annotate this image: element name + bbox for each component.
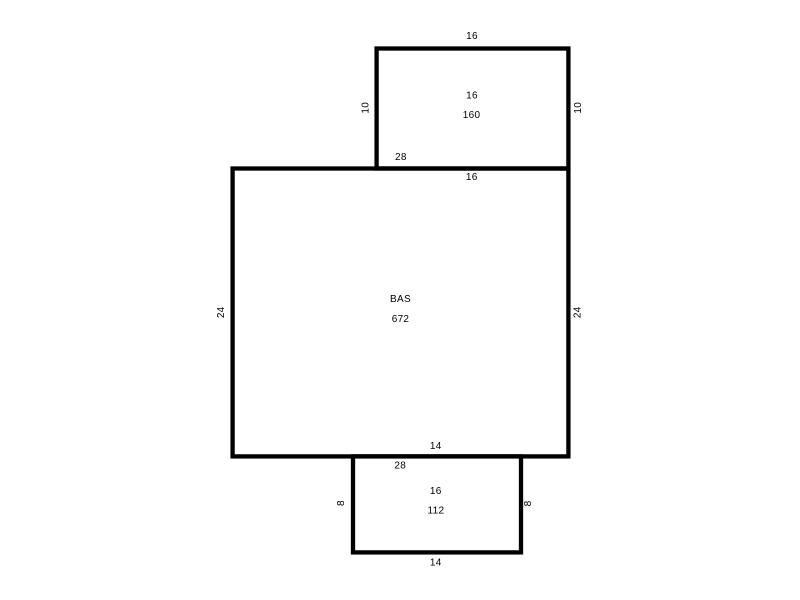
svg-text:24: 24 xyxy=(216,306,227,318)
svg-text:28: 28 xyxy=(394,460,406,471)
svg-text:672: 672 xyxy=(392,314,410,325)
svg-text:8: 8 xyxy=(336,500,347,506)
svg-text:160: 160 xyxy=(463,110,481,121)
svg-text:8: 8 xyxy=(523,500,534,506)
svg-text:112: 112 xyxy=(427,506,444,517)
svg-text:BAS: BAS xyxy=(390,294,411,305)
svg-text:14: 14 xyxy=(430,558,442,569)
svg-text:16: 16 xyxy=(466,91,478,102)
svg-text:10: 10 xyxy=(573,102,584,114)
svg-text:28: 28 xyxy=(395,152,407,163)
svg-text:16: 16 xyxy=(430,486,442,497)
svg-text:14: 14 xyxy=(430,441,442,452)
svg-text:16: 16 xyxy=(466,172,478,183)
svg-text:16: 16 xyxy=(466,31,478,42)
svg-text:24: 24 xyxy=(572,306,583,318)
svg-text:10: 10 xyxy=(361,102,372,114)
